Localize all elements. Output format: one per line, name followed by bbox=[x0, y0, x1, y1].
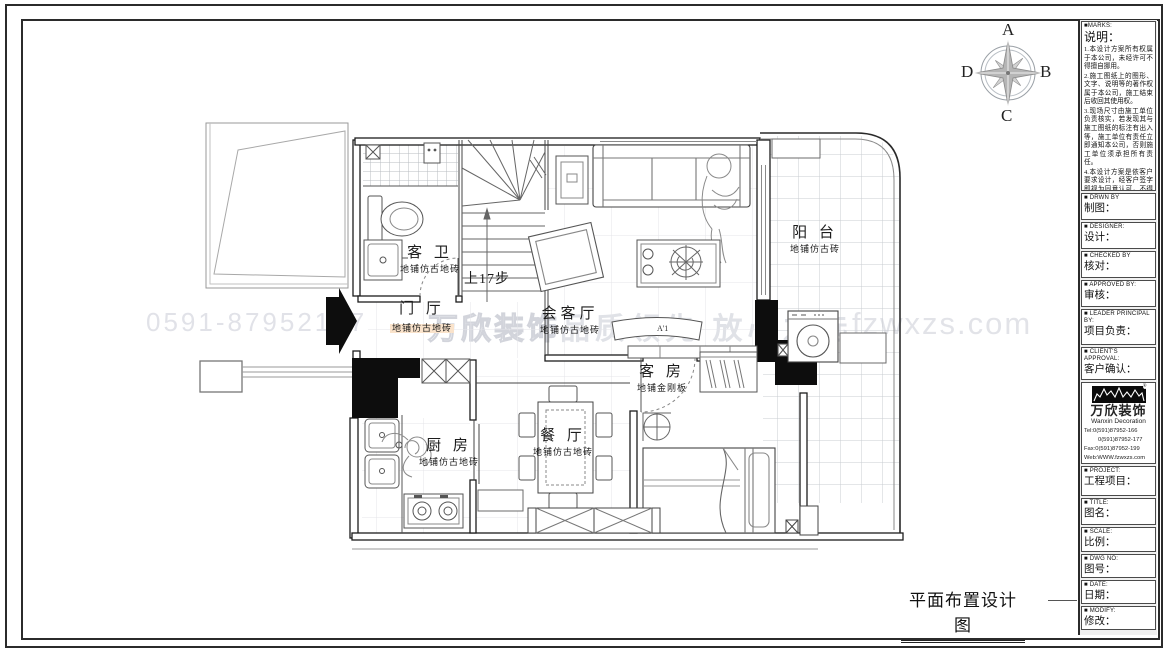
titleblock-field-drawn-by: ■ DRWN BY 制图： bbox=[1081, 193, 1156, 220]
laundry-counter bbox=[840, 333, 886, 363]
gas-stove bbox=[404, 494, 463, 528]
compass-letter-south: C bbox=[1001, 106, 1012, 126]
wall-unit bbox=[556, 156, 588, 204]
titleblock-marks: ■MARKS: 说明： 1.本设计方案所有权属于本公司，未经许可不得擅自挪用。 … bbox=[1081, 21, 1156, 191]
titleblock-field-date: ■ DATE: 日期： bbox=[1081, 580, 1156, 604]
room-label-dining: 餐 厅 地铺仿古地砖 bbox=[523, 428, 603, 457]
ac-unit-box bbox=[200, 361, 352, 392]
fax-line: Fax:0(591)87952-199 bbox=[1084, 445, 1153, 454]
corner-column bbox=[786, 506, 818, 535]
room-label-kitchen: 厨 房 地铺仿古地砖 bbox=[409, 438, 489, 467]
dining-cabinet bbox=[528, 508, 660, 533]
title-block: ■MARKS: 说明： 1.本设计方案所有权属于本公司，未经许可不得擅自挪用。 … bbox=[1078, 20, 1157, 635]
titleblock-field-approved-by: ■ APPROVED BY: 审核： bbox=[1081, 280, 1156, 307]
compass-letter-east: B bbox=[1040, 62, 1051, 82]
compass-letter-west: D bbox=[961, 62, 973, 82]
compass-letter-north: A bbox=[1002, 20, 1014, 40]
elevation-marker: A'1 bbox=[657, 324, 668, 333]
shoe-cabinet bbox=[422, 359, 470, 383]
guest-bed bbox=[643, 448, 775, 533]
entry-arrow bbox=[326, 288, 357, 354]
room-label-balcony: 阳 台 地铺仿古砖 bbox=[780, 225, 850, 254]
company-logo-icon: ® bbox=[1092, 386, 1146, 403]
terrace-outline bbox=[206, 123, 348, 288]
titleblock-field-checked-by: ■ CHECKED BY 核对： bbox=[1081, 251, 1156, 278]
titleblock-field-principal: ■ LEADER PRINCIPAL BY: 项目负责： bbox=[1081, 309, 1156, 345]
drawing-title: 平面布置设计图 bbox=[901, 586, 1025, 641]
contact-info: Tel:0(591)87952-166 0(591)87952-177 Fax:… bbox=[1084, 427, 1153, 463]
brand-name-en: Wanxin Decoration bbox=[1084, 418, 1153, 426]
titleblock-field-designer: ■ DESIGNER: 设计： bbox=[1081, 222, 1156, 249]
stair-note: 上17步 bbox=[464, 268, 510, 288]
room-label-guest: 客 房 地铺金刚板 bbox=[622, 364, 702, 393]
compass-rose: A B C D bbox=[958, 18, 1058, 130]
company-logo-block: ® 万欣装饰 Wanxin Decoration Tel:0(591)87952… bbox=[1081, 382, 1156, 464]
titleblock-field-title: ■ TITLE: 图名： bbox=[1081, 498, 1156, 525]
registered-mark-icon: ® bbox=[1143, 384, 1147, 389]
titleblock-field-modify: ■ MODIFY: 修改： bbox=[1081, 606, 1156, 630]
coffee-table bbox=[637, 240, 720, 287]
title-leader-line bbox=[1048, 600, 1077, 601]
web-line: Web:WWW.fzwxzs.com bbox=[1084, 454, 1153, 463]
room-label-foyer: 门 厅 地铺仿古地砖 bbox=[382, 301, 462, 335]
tel-line-2: 0(591)87952-177 bbox=[1084, 436, 1153, 445]
blueprint-page: { "drawing_title": "平面布置设计图", "watermark… bbox=[0, 0, 1170, 653]
titleblock-field-project: ■ PROJECT: 工程项目： bbox=[1081, 466, 1156, 496]
room-label-living: 会客厅 地铺仿古地砖 bbox=[515, 306, 625, 335]
titleblock-field-client-approval: ■ CLIENT'S APPROVAL: 客户确认： bbox=[1081, 347, 1156, 380]
round-table bbox=[643, 413, 671, 441]
brand-name: 万欣装饰 bbox=[1084, 404, 1153, 418]
titleblock-field-scale: ■ SCALE: 比例： bbox=[1081, 527, 1156, 552]
wardrobe bbox=[700, 352, 757, 392]
room-label-bathroom: 客 卫 地铺仿古地砖 bbox=[390, 245, 470, 274]
tel-line-1: Tel:0(591)87952-166 bbox=[1084, 427, 1153, 436]
titleblock-field-dwg-no: ■ DWG NO: 图号： bbox=[1081, 554, 1156, 578]
